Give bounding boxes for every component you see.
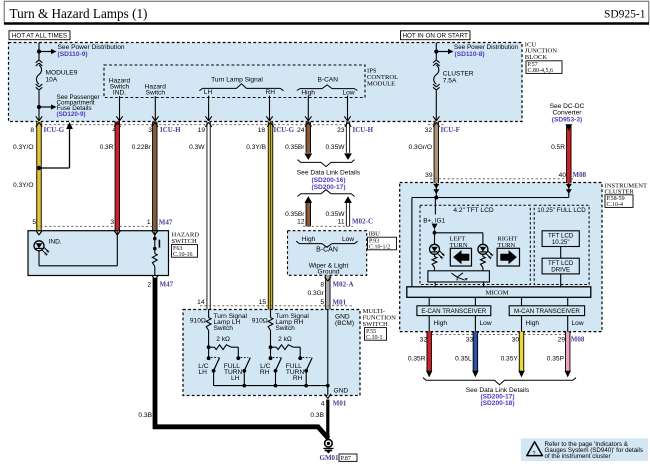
svg-text:High: High — [434, 320, 448, 327]
svg-text:LH: LH — [198, 369, 207, 376]
svg-text:0.35Br: 0.35Br — [285, 144, 305, 151]
svg-text:RH: RH — [266, 89, 276, 96]
svg-text:18: 18 — [258, 127, 266, 134]
svg-text:32: 32 — [420, 337, 428, 344]
svg-text:Low: Low — [572, 320, 584, 327]
svg-text:LH: LH — [231, 375, 240, 382]
svg-text:0.3Gr: 0.3Gr — [308, 290, 325, 297]
svg-text:32: 32 — [425, 127, 433, 134]
svg-text:33: 33 — [466, 337, 474, 344]
svg-text:0.3Gr/O: 0.3Gr/O — [409, 144, 432, 151]
svg-text:39: 39 — [425, 172, 433, 179]
svg-text:High: High — [526, 320, 540, 327]
svg-text:4: 4 — [321, 400, 325, 407]
svg-text:0.35W: 0.35W — [325, 144, 345, 151]
svg-text:B+, IG1: B+, IG1 — [423, 218, 445, 225]
svg-text:1: 1 — [147, 219, 151, 226]
svg-text:SWITCH: SWITCH — [172, 238, 198, 245]
svg-text:19: 19 — [198, 127, 206, 134]
svg-text:ICU-H: ICU-H — [353, 126, 374, 134]
svg-text:0.22Br: 0.22Br — [132, 144, 152, 151]
svg-text:(BCM): (BCM) — [335, 320, 354, 327]
svg-text:M47: M47 — [160, 281, 174, 289]
svg-text:(SD200-18): (SD200-18) — [480, 400, 514, 407]
svg-text:29: 29 — [558, 337, 566, 344]
svg-text:0.3B: 0.3B — [138, 412, 152, 419]
svg-text:5: 5 — [320, 299, 324, 306]
svg-text:Switch: Switch — [214, 325, 234, 332]
svg-text:40: 40 — [559, 172, 567, 179]
svg-text:10.25": 10.25" — [552, 239, 570, 246]
svg-text:Ground: Ground — [318, 268, 340, 275]
svg-text:High: High — [301, 90, 315, 97]
svg-text:(SD120-9): (SD120-9) — [57, 111, 86, 118]
svg-text:910Ω: 910Ω — [190, 318, 206, 325]
svg-text:0.5R: 0.5R — [551, 144, 565, 151]
svg-text:C.10-16: C.10-16 — [173, 252, 193, 258]
svg-text:0.3Y/O: 0.3Y/O — [13, 182, 34, 189]
svg-text:0.3Y/O: 0.3Y/O — [13, 144, 34, 151]
svg-text:(SD200-16): (SD200-16) — [311, 177, 345, 184]
svg-text:IND.: IND. — [113, 90, 126, 97]
svg-text:30: 30 — [512, 337, 520, 344]
svg-text:M01: M01 — [333, 298, 347, 306]
svg-text:C.80-4,5,6: C.80-4,5,6 — [528, 68, 554, 74]
svg-text:MICOM: MICOM — [485, 289, 508, 296]
svg-text:M01: M01 — [333, 399, 347, 407]
svg-text:0.35R: 0.35R — [408, 355, 426, 362]
svg-text:SWITCH: SWITCH — [363, 321, 389, 328]
svg-text:M02-C: M02-C — [352, 218, 373, 226]
svg-text:0.35L: 0.35L — [455, 355, 472, 362]
svg-text:8: 8 — [320, 281, 324, 288]
svg-text:0.35W: 0.35W — [325, 211, 345, 218]
svg-text:23: 23 — [337, 127, 345, 134]
svg-text:(SD200-17): (SD200-17) — [311, 184, 345, 191]
svg-text:0.35P: 0.35P — [547, 355, 565, 362]
svg-text:8: 8 — [30, 127, 34, 134]
svg-text:Switch: Switch — [275, 325, 295, 332]
svg-text:HOT IN ON OR START: HOT IN ON OR START — [402, 33, 468, 40]
svg-text:B-CAN: B-CAN — [318, 77, 339, 84]
svg-text:See Data Link Details: See Data Link Details — [297, 170, 361, 177]
svg-text:0.3W: 0.3W — [189, 144, 205, 151]
svg-text:IBU: IBU — [369, 231, 381, 238]
svg-text:High: High — [302, 236, 316, 243]
svg-text:7.5A: 7.5A — [443, 78, 457, 85]
svg-text:CLUSTER: CLUSTER — [443, 70, 474, 77]
svg-text:10A: 10A — [46, 77, 58, 84]
svg-text:DRIVE: DRIVE — [551, 267, 570, 274]
svg-text:C.10-1: C.10-1 — [366, 335, 383, 341]
svg-text:910Ω: 910Ω — [252, 318, 268, 325]
svg-text:Turn Lamp Signal: Turn Lamp Signal — [211, 77, 263, 84]
svg-text:10.25" FULL LCD: 10.25" FULL LCD — [537, 207, 586, 214]
svg-text:2: 2 — [147, 281, 151, 288]
svg-text:IND.: IND. — [49, 239, 62, 246]
svg-text:24: 24 — [297, 127, 305, 134]
svg-text:ICU-H: ICU-H — [160, 126, 181, 134]
svg-text:0.3R: 0.3R — [100, 144, 114, 151]
svg-text:(SD953-3): (SD953-3) — [552, 117, 582, 124]
svg-text:Low: Low — [342, 236, 354, 243]
svg-text:Low: Low — [342, 90, 354, 97]
svg-text:(SD110-8): (SD110-8) — [455, 51, 485, 58]
svg-text:MODULE9: MODULE9 — [46, 69, 78, 76]
svg-text:Low: Low — [480, 320, 492, 327]
svg-text:3: 3 — [110, 219, 114, 226]
svg-text:4.2" TFT LCD: 4.2" TFT LCD — [453, 207, 493, 214]
svg-text:See Power Distribution: See Power Distribution — [58, 44, 125, 51]
svg-text:RH: RH — [293, 375, 303, 382]
svg-text:Turn & Hazard Lamps (1): Turn & Hazard Lamps (1) — [10, 6, 148, 21]
svg-text:12: 12 — [297, 219, 305, 226]
svg-text:C.10-1/2: C.10-1/2 — [369, 244, 390, 250]
svg-text:ICU-G: ICU-G — [274, 126, 295, 134]
svg-text:15: 15 — [259, 299, 267, 306]
svg-text:Switch: Switch — [146, 90, 166, 97]
svg-text:ICU-F: ICU-F — [441, 126, 460, 134]
svg-text:0.3B: 0.3B — [310, 412, 324, 419]
svg-text:M08: M08 — [571, 336, 585, 344]
svg-text:14: 14 — [197, 299, 205, 306]
svg-text:SD925-1: SD925-1 — [604, 8, 646, 20]
svg-text:LH: LH — [204, 89, 213, 96]
svg-text:(SD110-9): (SD110-9) — [58, 51, 88, 58]
svg-text:11: 11 — [338, 219, 345, 226]
svg-text:5: 5 — [32, 219, 36, 226]
svg-text:?: ? — [533, 451, 536, 457]
svg-text:of the instrument cluster: of the instrument cluster — [545, 453, 611, 460]
svg-text:GND: GND — [334, 388, 349, 395]
svg-text:HOT AT ALL TIMES: HOT AT ALL TIMES — [12, 33, 67, 40]
svg-text:M02-A: M02-A — [333, 280, 354, 288]
svg-text:BLOCK: BLOCK — [525, 54, 548, 61]
svg-text:0.35Y: 0.35Y — [501, 355, 519, 362]
svg-text:B-CAN: B-CAN — [316, 246, 338, 253]
svg-text:C.10-4: C.10-4 — [607, 202, 624, 208]
svg-text:MODULE: MODULE — [367, 80, 395, 87]
svg-text:M-CAN TRANSCEIVER: M-CAN TRANSCEIVER — [514, 308, 580, 315]
svg-text:M08: M08 — [573, 171, 587, 179]
svg-text:ICU-G: ICU-G — [44, 126, 65, 134]
svg-text:0.3Y/B: 0.3Y/B — [246, 144, 266, 151]
svg-text:E-CAN TRANSCEIVER: E-CAN TRANSCEIVER — [421, 308, 486, 315]
svg-text:3: 3 — [148, 127, 152, 134]
svg-text:M47: M47 — [159, 218, 173, 226]
svg-text:GM01: GM01 — [320, 454, 340, 462]
svg-text:P.87: P.87 — [341, 455, 352, 462]
svg-text:RH: RH — [260, 369, 270, 376]
svg-text:2 kΩ: 2 kΩ — [216, 336, 230, 343]
svg-text:0.35Br: 0.35Br — [285, 211, 305, 218]
svg-text:2 kΩ: 2 kΩ — [278, 336, 292, 343]
svg-text:See Power Distribution: See Power Distribution — [454, 44, 519, 51]
